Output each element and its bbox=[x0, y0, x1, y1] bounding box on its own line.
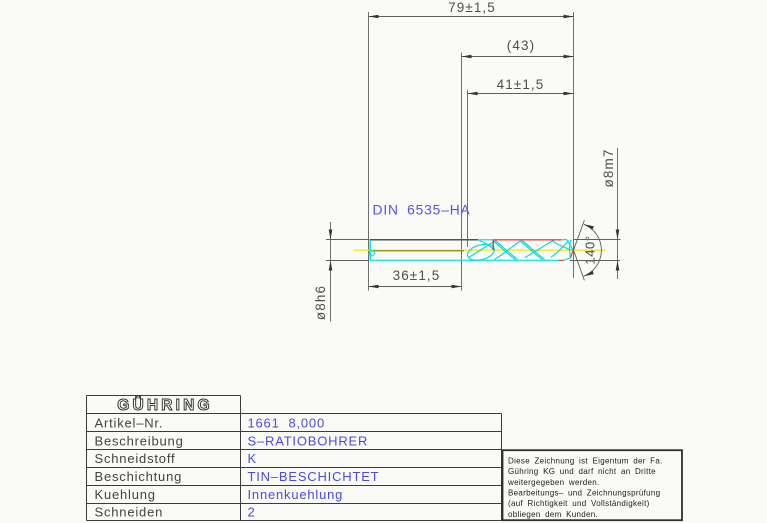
svg-text:TIN–BESCHICHTET: TIN–BESCHICHTET bbox=[248, 469, 380, 484]
svg-text:Beschichtung: Beschichtung bbox=[95, 469, 183, 484]
svg-text:79±1,5: 79±1,5 bbox=[448, 0, 496, 15]
svg-text:S–RATIOBOHRER: S–RATIOBOHRER bbox=[248, 433, 369, 448]
svg-text:weitergegeben werden.: weitergegeben werden. bbox=[507, 478, 599, 487]
svg-text:Diese Zeichnung ist Eigentum d: Diese Zeichnung ist Eigentum der Fa. bbox=[508, 456, 663, 465]
svg-text:K: K bbox=[248, 451, 257, 466]
svg-text:Innenkuehlung: Innenkuehlung bbox=[248, 487, 344, 502]
svg-text:ø8h6: ø8h6 bbox=[313, 285, 328, 320]
svg-text:1661 8,000: 1661 8,000 bbox=[248, 416, 325, 431]
svg-text:(43): (43) bbox=[507, 38, 535, 53]
svg-text:Bearbeitungs– und Zeichnungspr: Bearbeitungs– und Zeichnungsprüfung bbox=[508, 489, 660, 498]
svg-text:(auf Richtigkeit und Vollständ: (auf Richtigkeit und Vollständigkeit) bbox=[508, 499, 650, 508]
svg-text:DIN 6535–HA: DIN 6535–HA bbox=[373, 203, 471, 218]
svg-text:Schneidstoff: Schneidstoff bbox=[95, 451, 176, 466]
svg-text:obliegen dem Kunden.: obliegen dem Kunden. bbox=[508, 510, 598, 519]
svg-text:Artikel–Nr.: Artikel–Nr. bbox=[95, 416, 164, 431]
svg-text:36±1,5: 36±1,5 bbox=[393, 268, 441, 283]
svg-text:Beschreibung: Beschreibung bbox=[95, 433, 184, 448]
svg-text:Schneiden: Schneiden bbox=[95, 505, 164, 520]
svg-text:41±1,5: 41±1,5 bbox=[497, 77, 545, 92]
svg-text:ø8m7: ø8m7 bbox=[601, 149, 616, 188]
svg-text:2: 2 bbox=[248, 505, 256, 520]
svg-text:Kuehlung: Kuehlung bbox=[95, 487, 156, 502]
svg-text:GÜHRING: GÜHRING bbox=[117, 397, 213, 414]
svg-text:Gühring KG und darf nicht an D: Gühring KG und darf nicht an Dritte bbox=[508, 467, 656, 476]
